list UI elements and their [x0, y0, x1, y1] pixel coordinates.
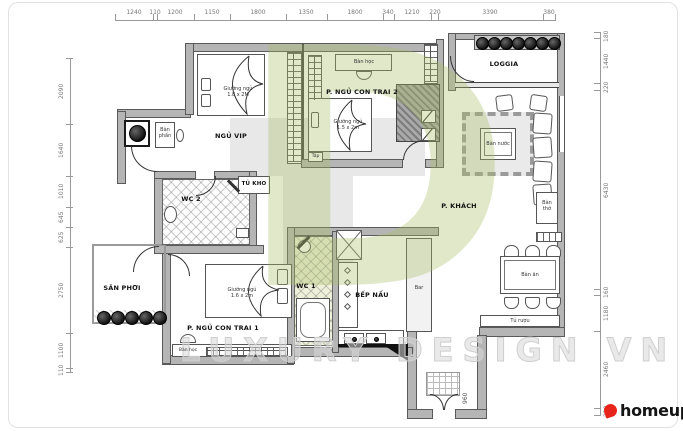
wall-segment [478, 336, 486, 418]
blanket-fold [197, 54, 265, 116]
dim-tick [66, 176, 73, 177]
bar-label: Bar [406, 285, 432, 291]
wall-segment [155, 172, 162, 253]
dim-label: 380 [534, 9, 564, 16]
wardrobe-centerline [430, 44, 431, 82]
dim-tick [594, 331, 601, 332]
wall-segment [456, 410, 486, 418]
toilet [164, 206, 177, 223]
wall-segment [480, 328, 564, 336]
dim-tick [66, 247, 73, 248]
room-label-boy1: P. NGỦ CON TRAI 1 [183, 324, 263, 332]
dim-tick [594, 289, 601, 290]
bathtub-inner [300, 302, 326, 338]
dim-label: 1800 [340, 9, 370, 16]
bed-boy1-label: Giường ngủ 1.6 x 2m [222, 287, 262, 300]
fridge-cross [336, 230, 362, 260]
dim-tick [594, 32, 601, 33]
homeup-logo[interactable]: homeup [604, 401, 683, 420]
dim-label: 1150 [197, 9, 227, 16]
dim-label: 110 [144, 9, 166, 16]
entry-mat [426, 372, 460, 396]
wall-segment [186, 44, 436, 51]
dim-label: 1640 [58, 130, 65, 170]
room-label-yard: SÂN PHƠI [82, 284, 162, 292]
wardrobe-centerline [314, 55, 315, 100]
sideboard [536, 232, 562, 242]
dim-tick [66, 124, 73, 125]
nightstand-label: Táp [308, 154, 323, 160]
dim-tick [594, 83, 601, 84]
bed-label-size: 1.8 x 2M [227, 92, 249, 98]
sofa-cushion [532, 112, 552, 134]
plant-pot [153, 311, 167, 325]
dim-tick [327, 14, 328, 21]
sink-drain [374, 337, 379, 342]
dim-label: 1210 [400, 9, 424, 16]
sofa-cushion [532, 136, 552, 158]
wall-segment [155, 172, 195, 178]
plant-pot [97, 311, 111, 325]
homeup-icon [602, 402, 618, 418]
dim-label: 220 [424, 9, 446, 16]
sofa-cushion [532, 160, 552, 182]
room-label-boy2: P. NGỦ CON TRAI 2 [322, 88, 402, 96]
bed-label-name: Giường ngủ [224, 86, 253, 92]
bed-label-name: Giường ngủ [228, 287, 257, 293]
wc2-sink [236, 228, 249, 238]
dim-tick [66, 333, 73, 334]
wall-segment [118, 110, 190, 117]
dim-label: 625 [58, 221, 65, 253]
desk-hatch [206, 347, 288, 356]
dimension-line-left [70, 58, 71, 372]
wall-segment [163, 356, 293, 364]
dim-label: 3390 [475, 9, 505, 16]
dim-label: 1350 [291, 9, 321, 16]
wall-segment [155, 246, 263, 253]
dim-label: 1800 [243, 9, 273, 16]
dim-tick [66, 372, 73, 373]
dim-tick [194, 14, 195, 21]
dim-tick [66, 207, 73, 208]
altar-label: Bàn thờ [538, 200, 556, 213]
coffee-table-label: Bàn nước [480, 141, 516, 147]
dim-label-entry: 960 [462, 385, 469, 411]
homeup-name: homeup [620, 401, 683, 420]
dim-tick [594, 38, 601, 39]
sink-drain [352, 337, 357, 342]
wine-cabinet-label: Tủ rượu [480, 318, 560, 324]
dim-label: 220 [603, 72, 610, 102]
dim-label: 1200 [164, 9, 186, 16]
dim-tick [594, 295, 601, 296]
vanity-label: Bàn phấn [156, 127, 174, 140]
desk-boy2-label: Bàn học [345, 59, 383, 65]
wall-segment [408, 330, 416, 418]
plant-pot [139, 311, 153, 325]
dining-table-label: Bàn ăn [500, 272, 560, 278]
dim-label: 2090 [58, 71, 65, 111]
plant-pot [111, 311, 125, 325]
wardrobe-symbol [287, 52, 302, 164]
dim-label: 110 [58, 354, 65, 386]
dim-label: 340 [377, 9, 399, 16]
loggia-rail [455, 82, 559, 88]
dim-tick [66, 368, 73, 369]
desk-chair [180, 334, 196, 343]
dim-tick [594, 415, 601, 416]
dim-tick [66, 58, 73, 59]
dim-label: 6430 [603, 170, 610, 210]
room-label-living: P. KHÁCH [419, 202, 499, 210]
washer-drum [129, 125, 146, 142]
bed-label-size: 1.5 x 2m [337, 125, 359, 131]
bed-boy2-label: Giường ngủ 1.5 x 2m [328, 119, 368, 132]
room-label-loggia: LOGGIA [464, 60, 544, 68]
bed-label-name: Giường ngủ [334, 119, 363, 125]
vanity-stool [176, 129, 184, 142]
room-label-storage: TỦ KHO [214, 181, 294, 187]
plant-pot [125, 311, 139, 325]
wall-segment [408, 410, 432, 418]
room-label-master: NGỦ VIP [191, 132, 271, 140]
window [559, 96, 565, 152]
dim-label: 1180 [603, 293, 610, 333]
dimension-line-top [115, 20, 555, 21]
desk-boy1-label: Bàn học [172, 348, 204, 354]
wall-segment [186, 44, 193, 114]
bed-master-label: Giường ngủ 1.8 x 2M [218, 86, 258, 99]
wardrobe-symbol [424, 44, 438, 84]
dim-tick [594, 90, 601, 91]
dim-label: 2750 [58, 270, 65, 310]
dim-tick [286, 14, 287, 21]
desk-hatch-centerline [206, 350, 286, 351]
room-label-wc2: WC 2 [151, 195, 231, 203]
dim-tick [115, 14, 116, 21]
wall-line [302, 44, 304, 166]
dim-tick [594, 408, 601, 409]
wardrobe-centerline [293, 52, 294, 162]
wardrobe-symbol [308, 55, 322, 102]
plant-pot [548, 37, 561, 50]
dim-tick [230, 14, 231, 21]
armchair [529, 94, 548, 112]
room-label-kitchen: BẾP NẤU [332, 291, 412, 299]
bed-label-size: 1.6 x 2m [231, 293, 253, 299]
dim-tick [66, 227, 73, 228]
wall-segment [288, 228, 438, 235]
room-label-wc1: WC 1 [266, 282, 346, 290]
dim-label: 2460 [603, 349, 610, 389]
armchair [495, 94, 514, 112]
